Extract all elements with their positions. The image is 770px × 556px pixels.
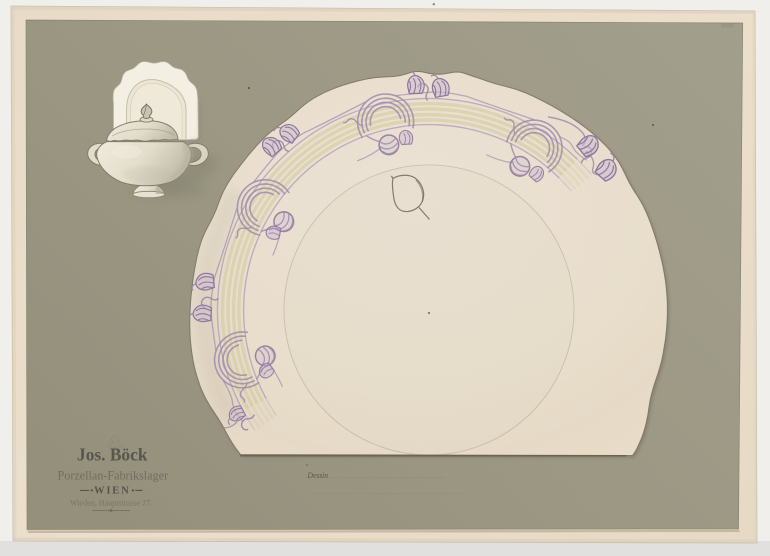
svg-text:WIEN: WIEN [94,486,131,497]
svg-text:Wieden, Hauptstrasse 27.: Wieden, Hauptstrasse 27. [70,497,152,507]
svg-text:Dessin: Dessin [307,471,328,480]
svg-text:Porzellan-Fabrikslager: Porzellan-Fabrikslager [58,469,169,483]
svg-text:Jos. Böck: Jos. Böck [77,445,148,465]
